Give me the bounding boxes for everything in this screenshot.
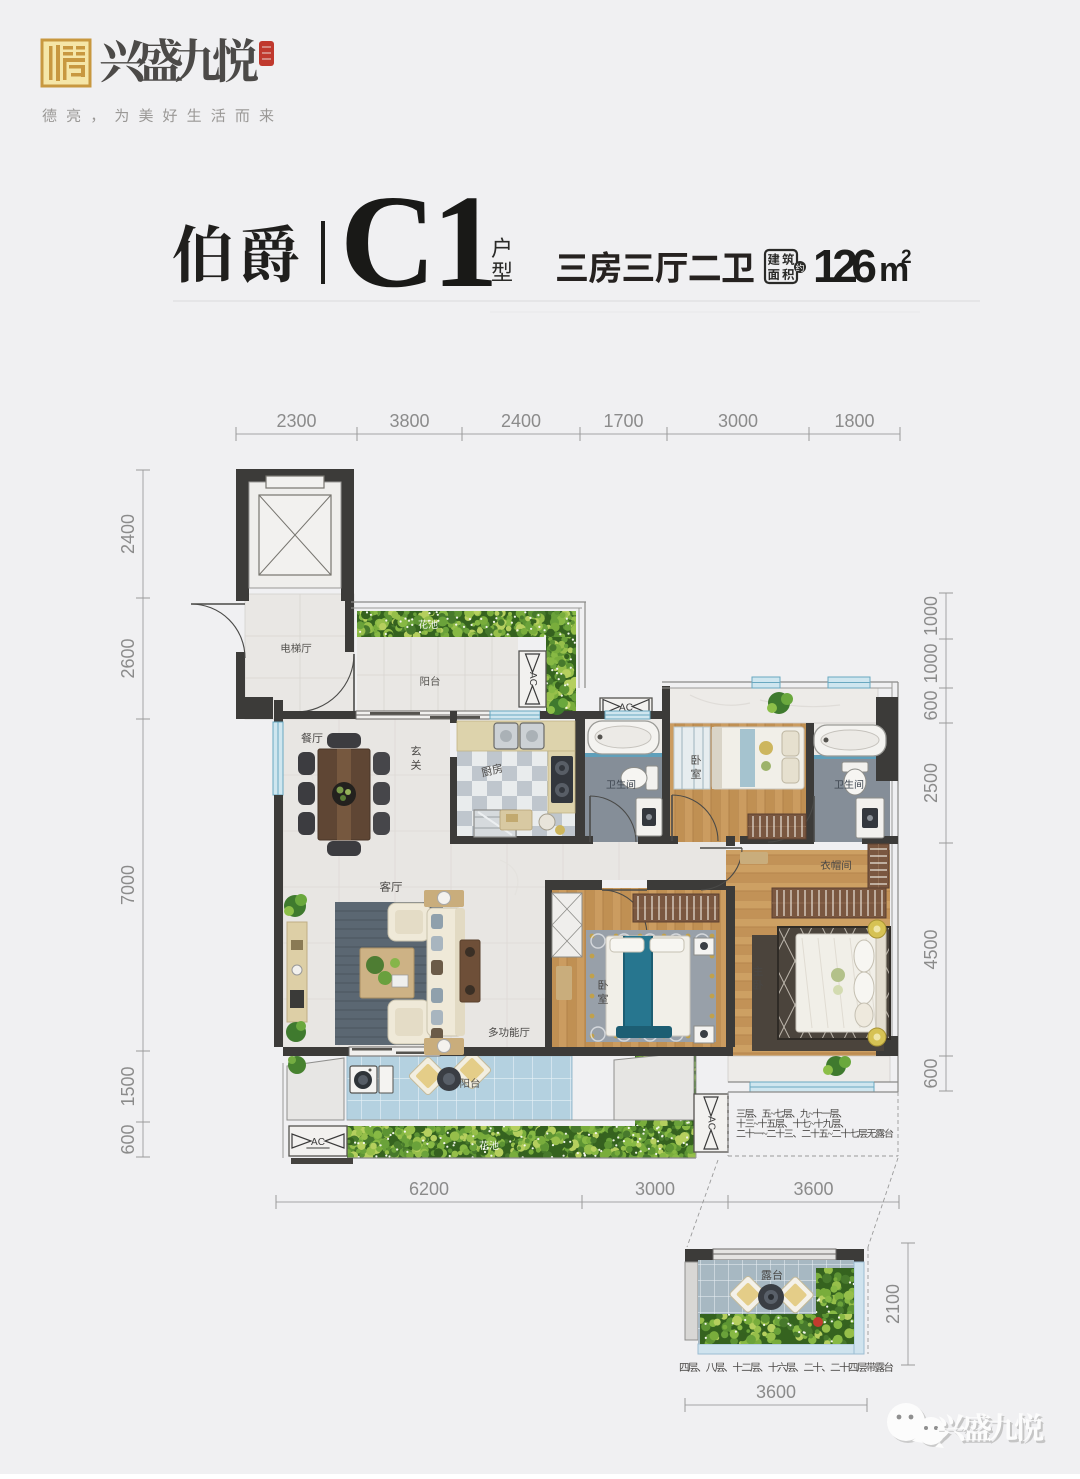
svg-text:6200: 6200 [409, 1179, 449, 1199]
svg-text:600: 600 [921, 690, 941, 720]
svg-text:餐厅: 餐厅 [301, 730, 323, 746]
svg-text:1800: 1800 [834, 411, 874, 431]
svg-text:约: 约 [795, 261, 804, 274]
svg-text:衣帽间: 衣帽间 [820, 858, 852, 873]
svg-text:600: 600 [118, 1124, 138, 1154]
svg-text:3600: 3600 [793, 1179, 833, 1199]
svg-text:关: 关 [411, 757, 422, 773]
svg-text:卫生间: 卫生间 [606, 776, 636, 791]
svg-text:3800: 3800 [389, 411, 429, 431]
svg-text:126: 126 [813, 240, 877, 292]
svg-text:1000: 1000 [921, 643, 941, 683]
svg-text:2600: 2600 [118, 638, 138, 678]
svg-text:三房三厅二卫: 三房三厅二卫 [555, 241, 755, 290]
svg-text:花池: 花池 [418, 616, 438, 631]
svg-text:4500: 4500 [921, 929, 941, 969]
svg-text:室: 室 [691, 766, 702, 782]
svg-text:兴盛九悦: 兴盛九悦 [99, 25, 259, 92]
svg-text:600: 600 [921, 1058, 941, 1088]
svg-text:2400: 2400 [118, 514, 138, 554]
svg-text:花池: 花池 [479, 1137, 499, 1152]
svg-text:兴盛九悦: 兴盛九悦 [936, 1404, 1044, 1448]
svg-text:客厅: 客厅 [380, 879, 403, 895]
svg-text:C: C [340, 167, 436, 315]
svg-text:四层、八层、十二层、十六层、二十、二十四层带露台: 四层、八层、十二层、十六层、二十、二十四层带露台 [679, 1360, 894, 1375]
svg-text:2300: 2300 [276, 411, 316, 431]
svg-text:1: 1 [432, 167, 499, 315]
svg-text:2500: 2500 [921, 763, 941, 803]
svg-text:阳台: 阳台 [420, 674, 441, 689]
svg-text:型: 型 [491, 255, 513, 287]
svg-text:室: 室 [598, 991, 609, 1007]
svg-text:3000: 3000 [635, 1179, 675, 1199]
svg-text:2400: 2400 [501, 411, 541, 431]
svg-text:1500: 1500 [118, 1066, 138, 1106]
svg-text:阳台: 阳台 [460, 1076, 481, 1091]
svg-text:二十一~二十三、二十五~二十七层无露台: 二十一~二十三、二十五~二十七层无露台 [736, 1125, 894, 1140]
svg-text:AC: AC [527, 672, 538, 686]
svg-text:面积: 面积 [768, 264, 795, 283]
svg-text:1700: 1700 [603, 411, 643, 431]
svg-text:2100: 2100 [883, 1284, 903, 1324]
svg-text:电梯厅: 电梯厅 [280, 641, 312, 656]
svg-text:7000: 7000 [118, 865, 138, 905]
svg-text:卧: 卧 [753, 977, 764, 993]
svg-text:2: 2 [901, 247, 912, 268]
svg-text:卫生间: 卫生间 [834, 776, 864, 791]
svg-text:多功能厅: 多功能厅 [488, 1025, 530, 1040]
svg-text:AC: AC [705, 1116, 716, 1130]
svg-text:露台: 露台 [761, 1267, 783, 1283]
svg-text:1000: 1000 [921, 596, 941, 636]
svg-text:3600: 3600 [756, 1382, 796, 1402]
svg-text:AC: AC [311, 1137, 325, 1148]
svg-text:3000: 3000 [718, 411, 758, 431]
